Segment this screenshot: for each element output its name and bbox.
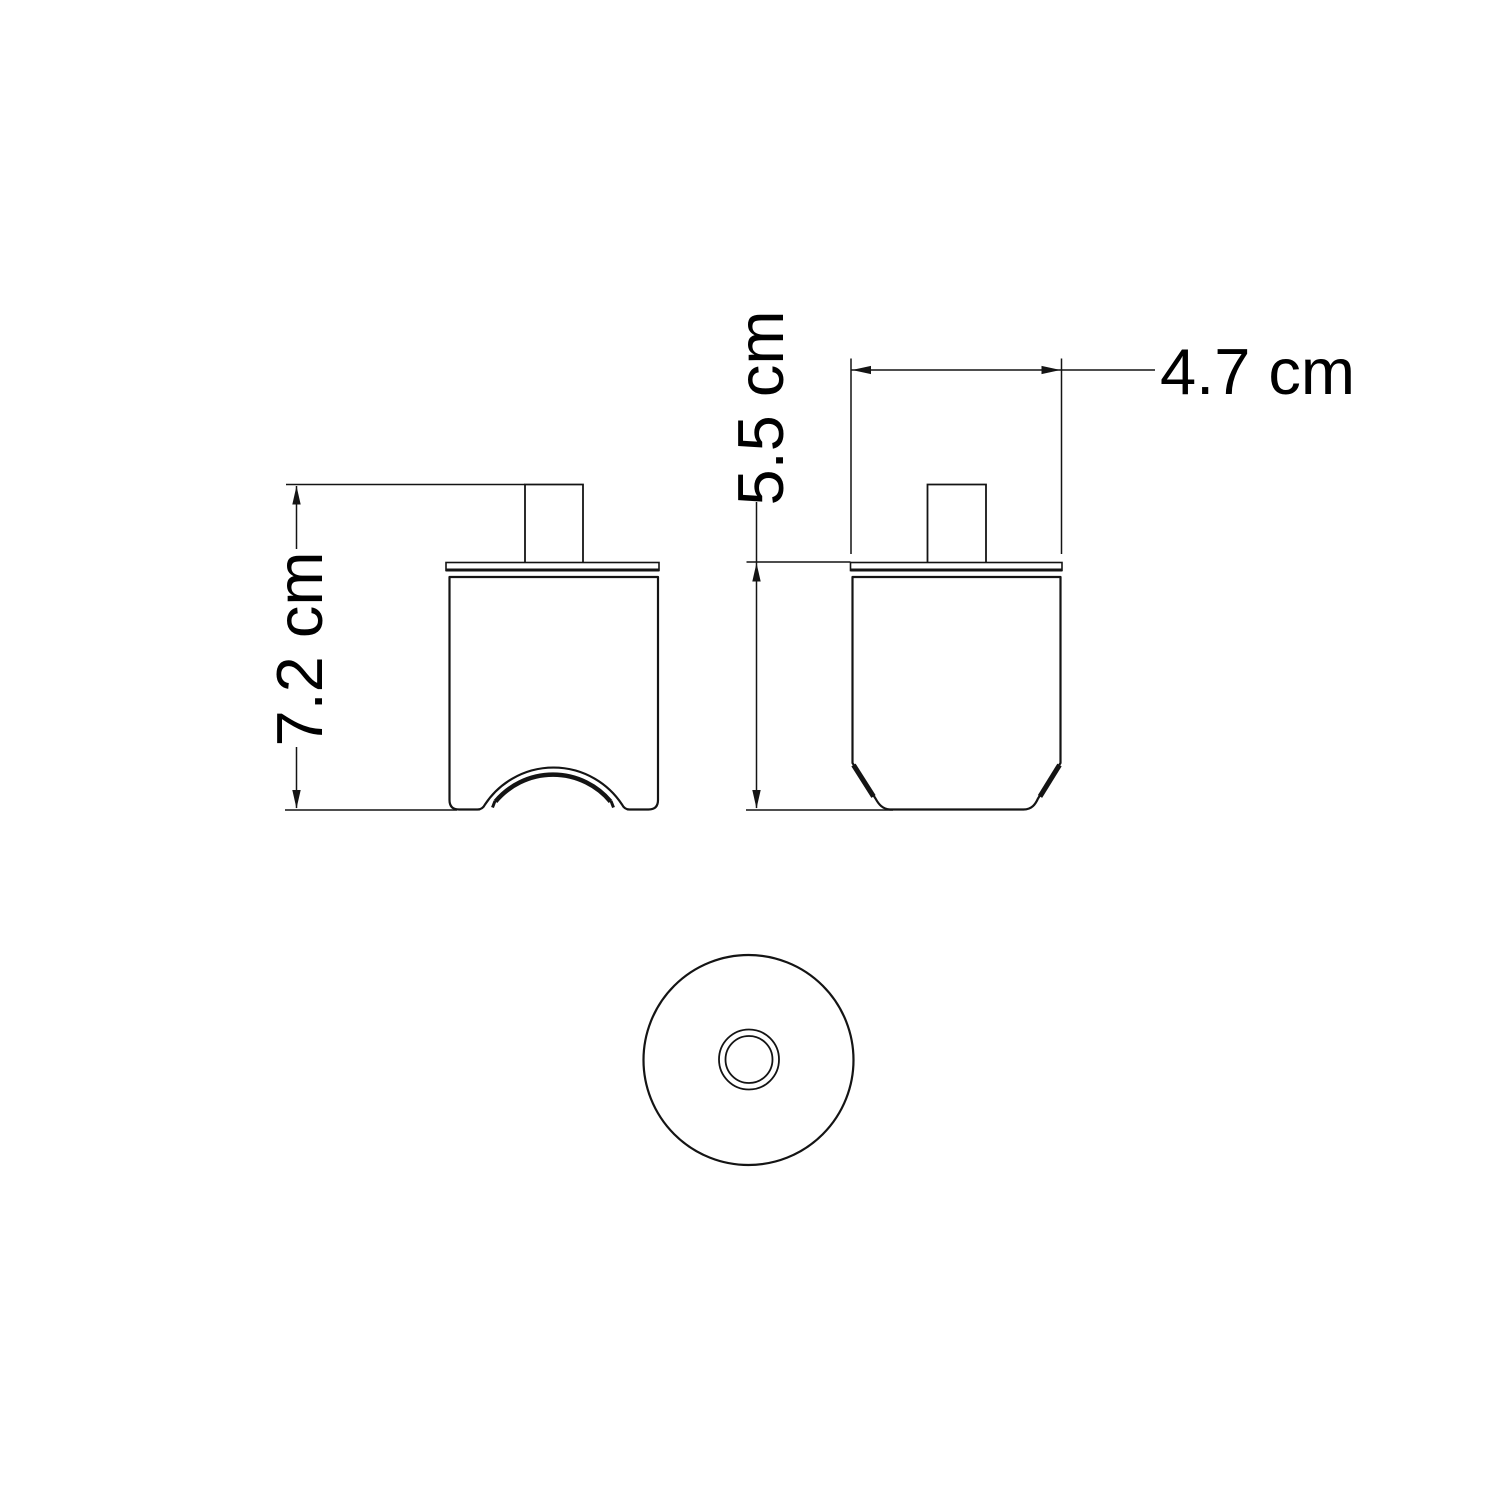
technical-drawing-canvas: 7.2 cm 5.5 cm 4.7 cm <box>0 0 1500 1500</box>
side-height-label: 5.5 cm <box>724 310 797 505</box>
side-view <box>851 485 1063 810</box>
side-body-outline <box>853 577 1061 810</box>
bottom-outer-circle <box>644 955 854 1165</box>
side-chamfer-right <box>1040 765 1060 797</box>
side-height-arrow-up-icon <box>752 563 760 582</box>
front-height-label: 7.2 cm <box>263 551 336 746</box>
front-height-arrow-up-icon <box>292 486 300 505</box>
side-chamfer-left <box>854 765 874 797</box>
drawing-page: 7.2 cm 5.5 cm 4.7 cm <box>0 0 1500 1500</box>
dimension-side-height: 5.5 cm <box>724 310 893 810</box>
front-view <box>446 485 659 810</box>
bottom-view <box>644 955 854 1165</box>
side-width-arrow-right-icon <box>1042 366 1061 374</box>
side-stem <box>928 485 987 563</box>
side-width-arrow-left-icon <box>852 366 871 374</box>
side-height-arrow-down-icon <box>752 790 760 809</box>
front-stem <box>525 485 583 563</box>
bottom-hole-ring-outer <box>719 1030 779 1090</box>
front-height-arrow-down-icon <box>292 790 300 809</box>
front-arch-tick-right <box>611 801 614 808</box>
bottom-hole-ring-inner <box>726 1036 773 1083</box>
front-arch-tick-left <box>493 801 496 808</box>
dimension-front-height: 7.2 cm <box>263 485 525 811</box>
side-width-label: 4.7 cm <box>1160 335 1355 408</box>
